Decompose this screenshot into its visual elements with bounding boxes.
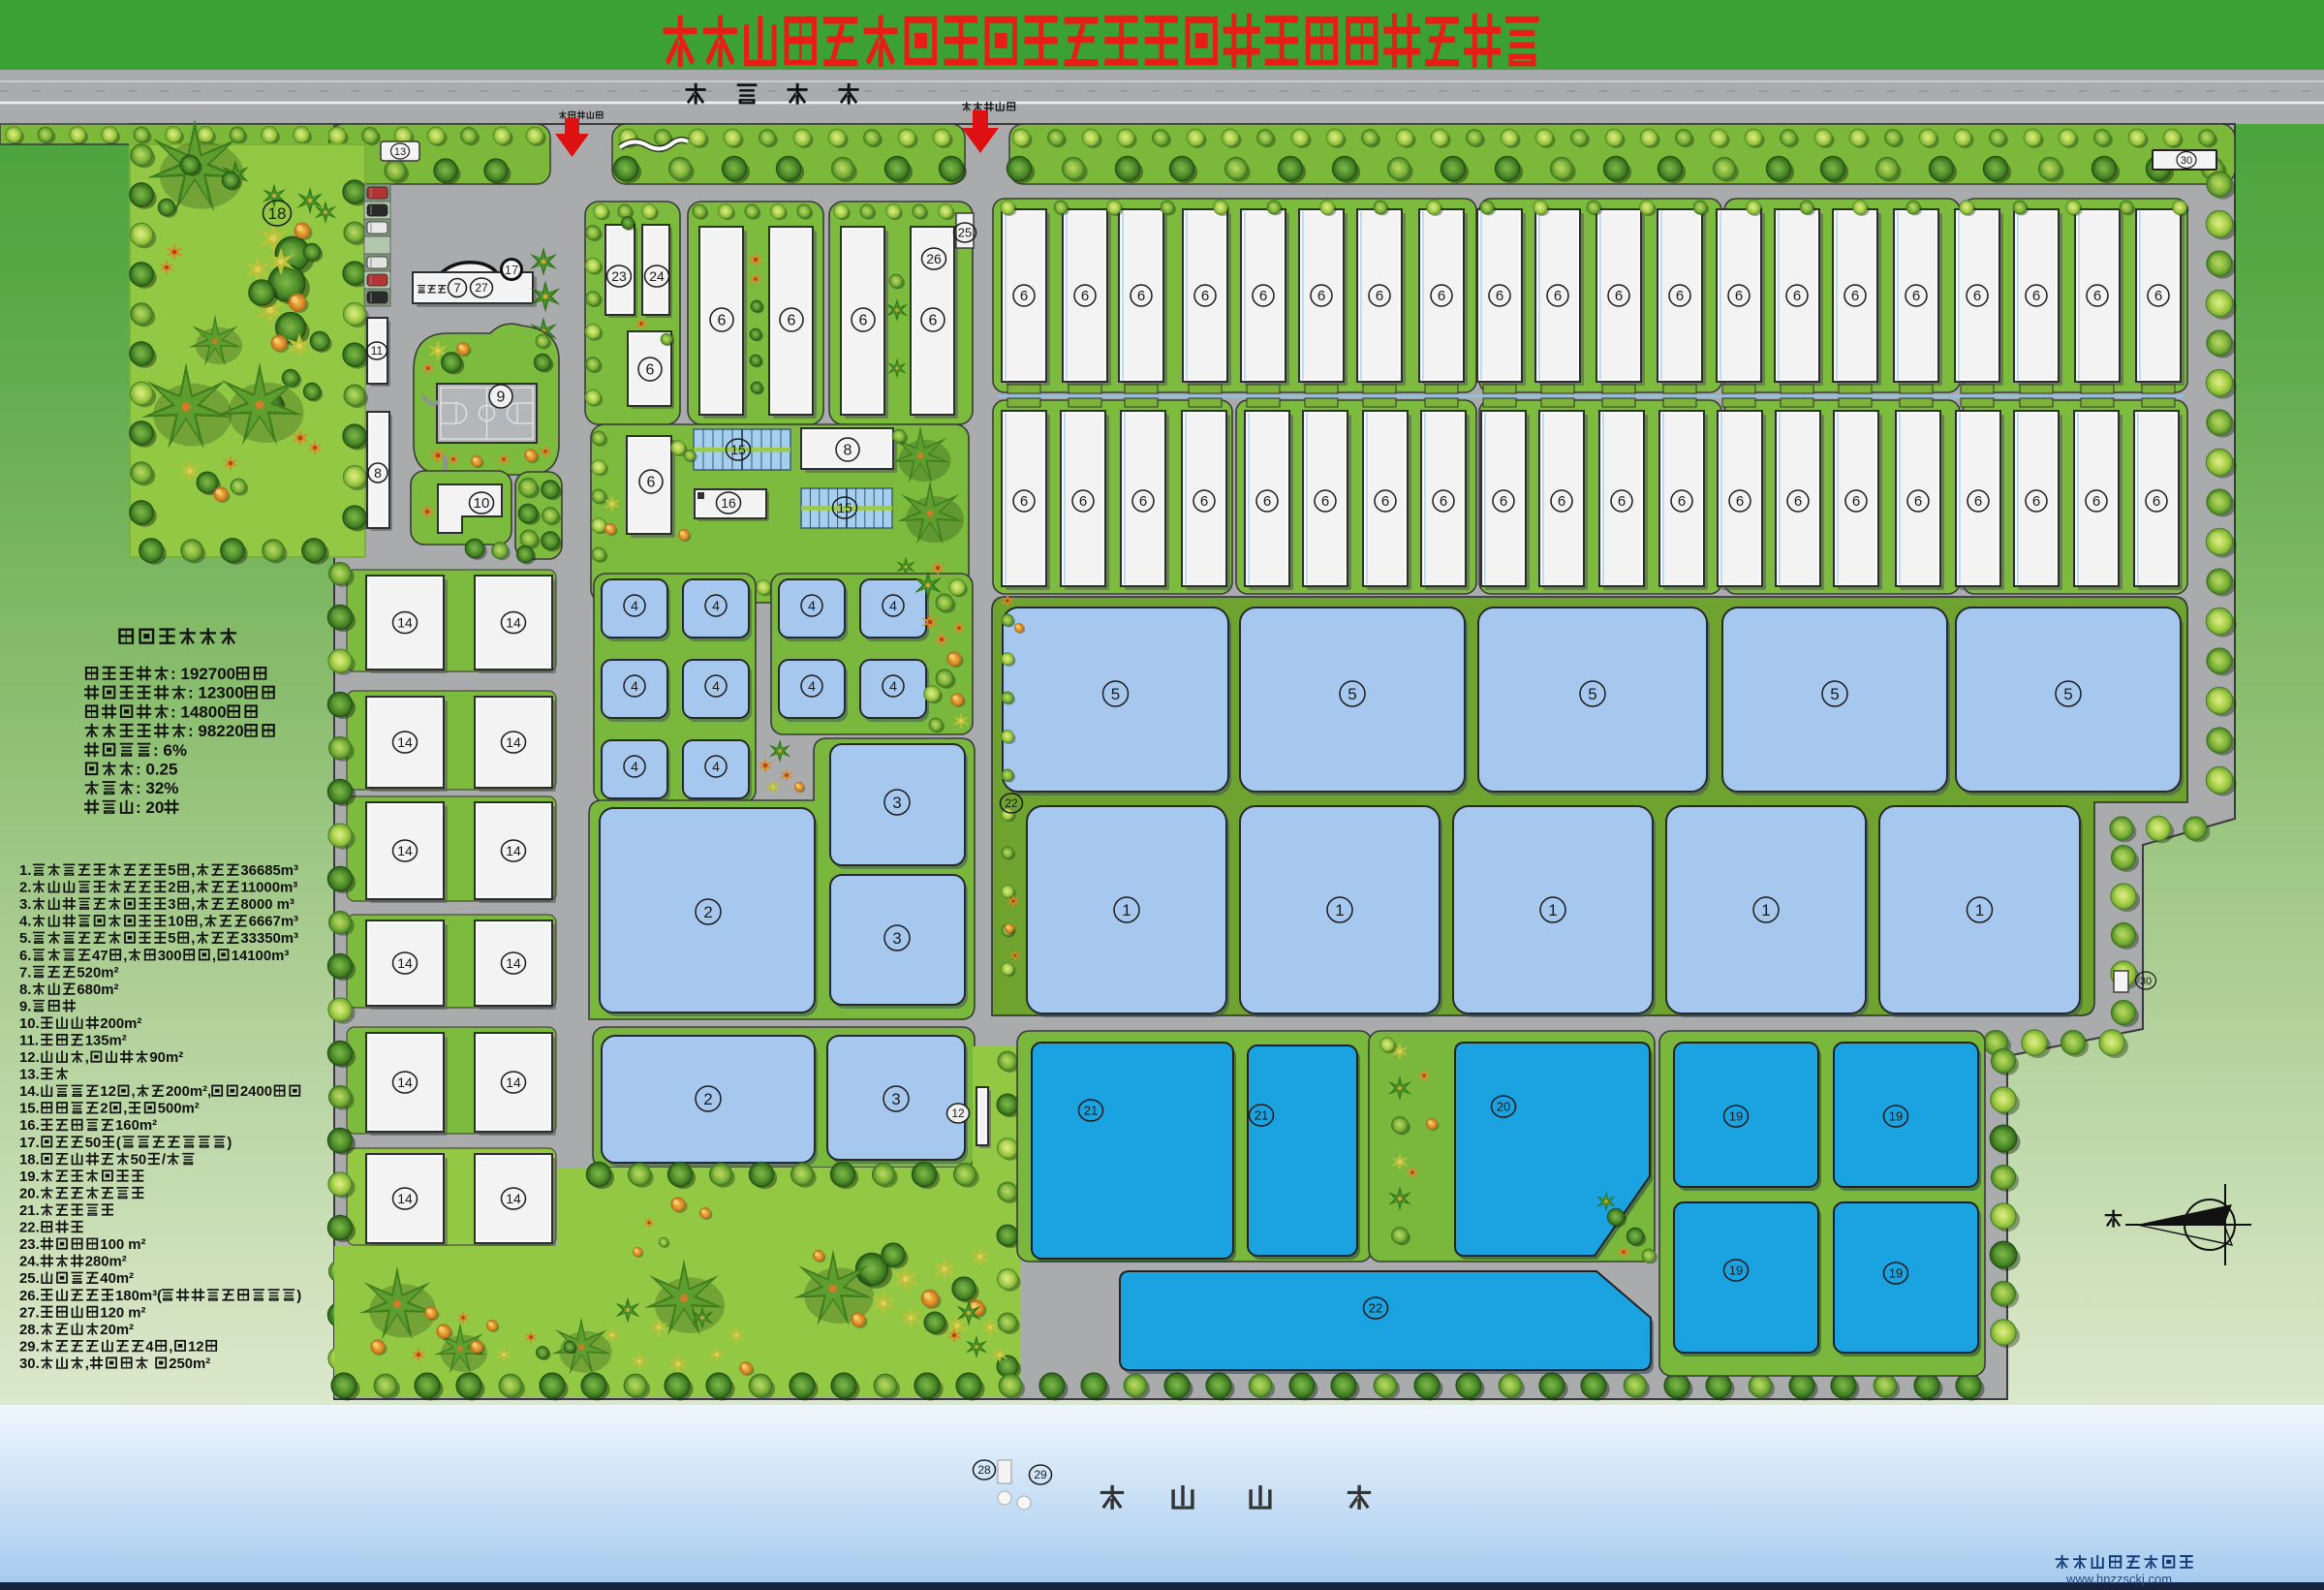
svg-text:12: 12 bbox=[188, 1339, 204, 1355]
svg-text:250m²: 250m² bbox=[169, 1356, 210, 1372]
svg-text:6: 6 bbox=[1736, 493, 1744, 510]
svg-text:6: 6 bbox=[1974, 493, 1982, 510]
svg-text:7.: 7. bbox=[19, 965, 31, 981]
svg-text:4: 4 bbox=[889, 678, 897, 694]
svg-text:6: 6 bbox=[1376, 288, 1383, 304]
svg-text:6: 6 bbox=[1321, 493, 1329, 510]
svg-text:1.: 1. bbox=[19, 863, 31, 879]
svg-text:21: 21 bbox=[1255, 1108, 1268, 1123]
svg-text:11.: 11. bbox=[19, 1034, 39, 1049]
svg-text:27.: 27. bbox=[19, 1305, 40, 1321]
svg-text:14: 14 bbox=[397, 734, 413, 750]
svg-text:33350m³: 33350m³ bbox=[240, 931, 298, 947]
svg-text:4: 4 bbox=[631, 598, 638, 613]
svg-text:3: 3 bbox=[892, 794, 901, 812]
svg-text:20m²: 20m² bbox=[100, 1323, 134, 1338]
svg-text:18: 18 bbox=[268, 204, 287, 223]
svg-text:14: 14 bbox=[506, 843, 521, 858]
svg-text:50: 50 bbox=[131, 1152, 147, 1168]
svg-text:15: 15 bbox=[837, 500, 852, 515]
svg-text:11: 11 bbox=[371, 344, 384, 358]
svg-text:29: 29 bbox=[1034, 1468, 1047, 1481]
svg-text:: 192700: : 192700 bbox=[170, 665, 235, 683]
svg-text:6: 6 bbox=[1914, 493, 1922, 510]
svg-text:1: 1 bbox=[1122, 901, 1131, 920]
svg-text:5: 5 bbox=[1111, 685, 1120, 703]
svg-text:26: 26 bbox=[926, 251, 942, 266]
svg-text:4: 4 bbox=[631, 759, 638, 774]
svg-text:6: 6 bbox=[718, 313, 727, 329]
svg-text:14: 14 bbox=[506, 734, 521, 750]
svg-text:,: , bbox=[191, 931, 195, 947]
svg-text:,: , bbox=[123, 949, 127, 964]
svg-text:10: 10 bbox=[168, 915, 184, 930]
svg-text:6: 6 bbox=[1317, 288, 1325, 304]
svg-text:6: 6 bbox=[1793, 288, 1801, 304]
svg-text:22: 22 bbox=[1005, 796, 1018, 810]
svg-text:14: 14 bbox=[397, 614, 413, 630]
svg-text:5: 5 bbox=[168, 931, 175, 947]
svg-text:14: 14 bbox=[397, 955, 413, 971]
svg-text:6: 6 bbox=[1496, 288, 1503, 304]
svg-text:: 14800: : 14800 bbox=[170, 702, 227, 721]
svg-text:,: , bbox=[191, 863, 195, 879]
svg-text:120 m²: 120 m² bbox=[100, 1305, 145, 1321]
svg-text:30: 30 bbox=[2140, 976, 2152, 987]
svg-text:5: 5 bbox=[168, 863, 175, 879]
svg-text:6: 6 bbox=[2093, 288, 2101, 304]
svg-text:6: 6 bbox=[1554, 288, 1562, 304]
svg-text:: 20: : 20 bbox=[136, 798, 164, 817]
svg-text:4: 4 bbox=[808, 598, 816, 613]
svg-text:6: 6 bbox=[2092, 493, 2100, 510]
svg-text:6: 6 bbox=[1020, 288, 1028, 304]
svg-text:8000 m³: 8000 m³ bbox=[240, 897, 294, 913]
svg-text:8: 8 bbox=[844, 443, 852, 459]
svg-text:14.: 14. bbox=[19, 1084, 40, 1100]
svg-text:25.: 25. bbox=[19, 1271, 40, 1287]
svg-text:520m²: 520m² bbox=[77, 965, 118, 981]
svg-text:9.: 9. bbox=[19, 999, 31, 1014]
svg-text:6: 6 bbox=[1851, 288, 1859, 304]
svg-text:14: 14 bbox=[506, 614, 521, 630]
svg-text:10.: 10. bbox=[19, 1016, 40, 1032]
svg-text:5: 5 bbox=[1830, 685, 1839, 703]
svg-text:6: 6 bbox=[1794, 493, 1802, 510]
svg-text:6: 6 bbox=[1973, 288, 1981, 304]
svg-text:6: 6 bbox=[929, 313, 938, 329]
svg-text:6: 6 bbox=[1137, 288, 1145, 304]
svg-text:36685m³: 36685m³ bbox=[240, 863, 298, 879]
svg-text:14: 14 bbox=[506, 1191, 521, 1206]
svg-text:6: 6 bbox=[1440, 493, 1447, 510]
svg-text:,: , bbox=[85, 1356, 89, 1372]
svg-text:5: 5 bbox=[1348, 685, 1356, 703]
svg-text:14: 14 bbox=[506, 1075, 521, 1090]
svg-text:,: , bbox=[212, 949, 216, 964]
svg-text:8.: 8. bbox=[19, 982, 31, 998]
svg-text:4: 4 bbox=[889, 598, 897, 613]
svg-text:2: 2 bbox=[703, 903, 712, 921]
svg-text:2.: 2. bbox=[19, 881, 31, 896]
svg-text:6.: 6. bbox=[19, 949, 31, 964]
svg-text:14: 14 bbox=[506, 955, 521, 971]
svg-text:280m²: 280m² bbox=[85, 1255, 127, 1270]
svg-text:90m²: 90m² bbox=[149, 1050, 183, 1066]
svg-text:18.: 18. bbox=[19, 1152, 40, 1168]
svg-text:15: 15 bbox=[730, 442, 746, 457]
svg-text:17: 17 bbox=[505, 263, 518, 277]
svg-text:29.: 29. bbox=[19, 1339, 40, 1355]
svg-text:6: 6 bbox=[2154, 288, 2162, 304]
svg-text:22: 22 bbox=[1369, 1301, 1382, 1316]
svg-text:100 m²: 100 m² bbox=[100, 1237, 145, 1253]
svg-text:,: , bbox=[191, 881, 195, 896]
svg-text:6: 6 bbox=[1912, 288, 1920, 304]
svg-text:www.hnzzsckj.com: www.hnzzsckj.com bbox=[2065, 1572, 2172, 1586]
svg-text:14: 14 bbox=[397, 1075, 413, 1090]
svg-text:10: 10 bbox=[474, 495, 490, 512]
svg-text:11000m³: 11000m³ bbox=[240, 881, 297, 896]
svg-text:8: 8 bbox=[374, 465, 382, 481]
svg-text:28.: 28. bbox=[19, 1323, 40, 1338]
svg-text:6: 6 bbox=[1678, 493, 1686, 510]
svg-text:14100m³: 14100m³ bbox=[232, 949, 290, 964]
svg-text:2400: 2400 bbox=[240, 1084, 272, 1100]
svg-text:4: 4 bbox=[712, 598, 720, 613]
svg-text:180m³(: 180m³( bbox=[115, 1289, 162, 1304]
svg-text:20.: 20. bbox=[19, 1187, 40, 1202]
svg-text:6: 6 bbox=[1259, 288, 1267, 304]
svg-text:3: 3 bbox=[168, 897, 175, 913]
svg-text:): ) bbox=[296, 1289, 301, 1304]
svg-text:,: , bbox=[191, 897, 195, 913]
svg-text:): ) bbox=[227, 1136, 232, 1151]
svg-text:3: 3 bbox=[892, 929, 901, 948]
svg-text:19: 19 bbox=[1729, 1109, 1743, 1124]
svg-text:6: 6 bbox=[1200, 493, 1208, 510]
svg-text:50: 50 bbox=[85, 1136, 102, 1151]
svg-text:2: 2 bbox=[100, 1102, 108, 1117]
svg-text:13: 13 bbox=[394, 146, 406, 158]
svg-text:: 0.25: : 0.25 bbox=[136, 761, 177, 779]
svg-text:,: , bbox=[132, 1084, 136, 1100]
svg-text:12: 12 bbox=[951, 1107, 965, 1120]
svg-text:23: 23 bbox=[611, 268, 627, 284]
svg-text:25: 25 bbox=[958, 226, 972, 240]
svg-text:5.: 5. bbox=[19, 931, 31, 947]
svg-text:6: 6 bbox=[1381, 493, 1389, 510]
svg-text:24: 24 bbox=[649, 268, 665, 284]
svg-text:680m²: 680m² bbox=[77, 982, 118, 998]
svg-text:200m²,: 200m², bbox=[166, 1084, 211, 1100]
svg-text:/: / bbox=[162, 1152, 166, 1168]
svg-text:23.: 23. bbox=[19, 1237, 40, 1253]
svg-text:47: 47 bbox=[92, 949, 108, 964]
svg-text:19: 19 bbox=[1889, 1266, 1903, 1281]
svg-text:6: 6 bbox=[2032, 493, 2040, 510]
svg-text:6: 6 bbox=[1263, 493, 1271, 510]
svg-text:6: 6 bbox=[1081, 288, 1089, 304]
svg-text:6: 6 bbox=[1735, 288, 1743, 304]
svg-text:14: 14 bbox=[397, 843, 413, 858]
svg-text:2: 2 bbox=[703, 1090, 712, 1108]
svg-text:6667m³: 6667m³ bbox=[249, 915, 298, 930]
svg-text:6: 6 bbox=[788, 313, 796, 329]
svg-text:26.: 26. bbox=[19, 1289, 40, 1304]
svg-text:27: 27 bbox=[475, 281, 488, 295]
svg-text:6: 6 bbox=[1558, 493, 1565, 510]
svg-text:7: 7 bbox=[453, 281, 460, 296]
svg-text:12.: 12. bbox=[19, 1050, 40, 1066]
svg-text:4: 4 bbox=[145, 1339, 154, 1355]
svg-text:3.: 3. bbox=[19, 897, 31, 913]
svg-text:12: 12 bbox=[100, 1084, 116, 1100]
svg-text:6: 6 bbox=[859, 313, 868, 329]
svg-text:4: 4 bbox=[808, 678, 816, 694]
svg-text:17.: 17. bbox=[19, 1136, 40, 1151]
svg-text:6: 6 bbox=[1615, 288, 1623, 304]
svg-text:19: 19 bbox=[1729, 1263, 1743, 1278]
svg-text:6: 6 bbox=[646, 362, 655, 379]
svg-text:6: 6 bbox=[1618, 493, 1626, 510]
svg-text:6: 6 bbox=[1020, 493, 1028, 510]
svg-text:6: 6 bbox=[1852, 493, 1860, 510]
svg-text:300: 300 bbox=[158, 949, 182, 964]
svg-text:5: 5 bbox=[1588, 685, 1596, 703]
svg-text:4: 4 bbox=[712, 678, 720, 694]
svg-text:,: , bbox=[169, 1339, 172, 1355]
svg-text:3: 3 bbox=[891, 1090, 900, 1108]
svg-text:22.: 22. bbox=[19, 1221, 40, 1236]
svg-text:160m²: 160m² bbox=[115, 1118, 157, 1134]
svg-text:,: , bbox=[123, 1102, 127, 1117]
svg-text:,: , bbox=[200, 915, 203, 930]
svg-text:200m²: 200m² bbox=[100, 1016, 141, 1032]
svg-text:5: 5 bbox=[2063, 685, 2072, 703]
svg-text:9: 9 bbox=[497, 390, 506, 406]
svg-text:21: 21 bbox=[1084, 1104, 1098, 1118]
svg-text:1: 1 bbox=[1335, 901, 1344, 920]
svg-text:135m²: 135m² bbox=[85, 1034, 127, 1049]
svg-text:: 32%: : 32% bbox=[136, 779, 178, 797]
svg-text:: 12300: : 12300 bbox=[188, 684, 244, 702]
svg-text:4.: 4. bbox=[19, 915, 31, 930]
svg-text:1: 1 bbox=[1975, 901, 1984, 920]
svg-text:15.: 15. bbox=[19, 1102, 40, 1117]
svg-text:19: 19 bbox=[1889, 1109, 1903, 1124]
svg-text:30.: 30. bbox=[19, 1356, 40, 1372]
svg-text:6: 6 bbox=[1079, 493, 1087, 510]
svg-text:6: 6 bbox=[1500, 493, 1507, 510]
svg-text:13.: 13. bbox=[19, 1068, 40, 1083]
svg-text:6: 6 bbox=[1139, 493, 1147, 510]
svg-text:1: 1 bbox=[1548, 901, 1557, 920]
svg-text:6: 6 bbox=[2032, 288, 2040, 304]
svg-text:1: 1 bbox=[1761, 901, 1770, 920]
svg-text:30: 30 bbox=[2181, 155, 2192, 167]
svg-text:21.: 21. bbox=[19, 1203, 40, 1219]
svg-text:6: 6 bbox=[1438, 288, 1445, 304]
svg-text:6: 6 bbox=[2153, 493, 2160, 510]
svg-text:14: 14 bbox=[397, 1191, 413, 1206]
svg-text:28: 28 bbox=[977, 1463, 991, 1477]
svg-text:6: 6 bbox=[1201, 288, 1209, 304]
svg-text:500m²: 500m² bbox=[158, 1102, 200, 1117]
svg-text:16.: 16. bbox=[19, 1118, 40, 1134]
svg-text:6: 6 bbox=[1676, 288, 1684, 304]
svg-text:24.: 24. bbox=[19, 1255, 40, 1270]
svg-text:2: 2 bbox=[168, 881, 175, 896]
svg-text:: 98220: : 98220 bbox=[188, 722, 244, 740]
svg-text:40m²: 40m² bbox=[100, 1271, 134, 1287]
svg-text:(: ( bbox=[116, 1136, 121, 1151]
svg-text:16: 16 bbox=[721, 495, 736, 511]
svg-text:4: 4 bbox=[631, 678, 638, 694]
svg-text:6: 6 bbox=[647, 475, 656, 491]
svg-text:4: 4 bbox=[712, 759, 720, 774]
svg-text:19.: 19. bbox=[19, 1169, 40, 1185]
svg-text:20: 20 bbox=[1497, 1100, 1510, 1114]
svg-text:: 6%: : 6% bbox=[153, 741, 187, 760]
svg-text:,: , bbox=[85, 1050, 89, 1066]
